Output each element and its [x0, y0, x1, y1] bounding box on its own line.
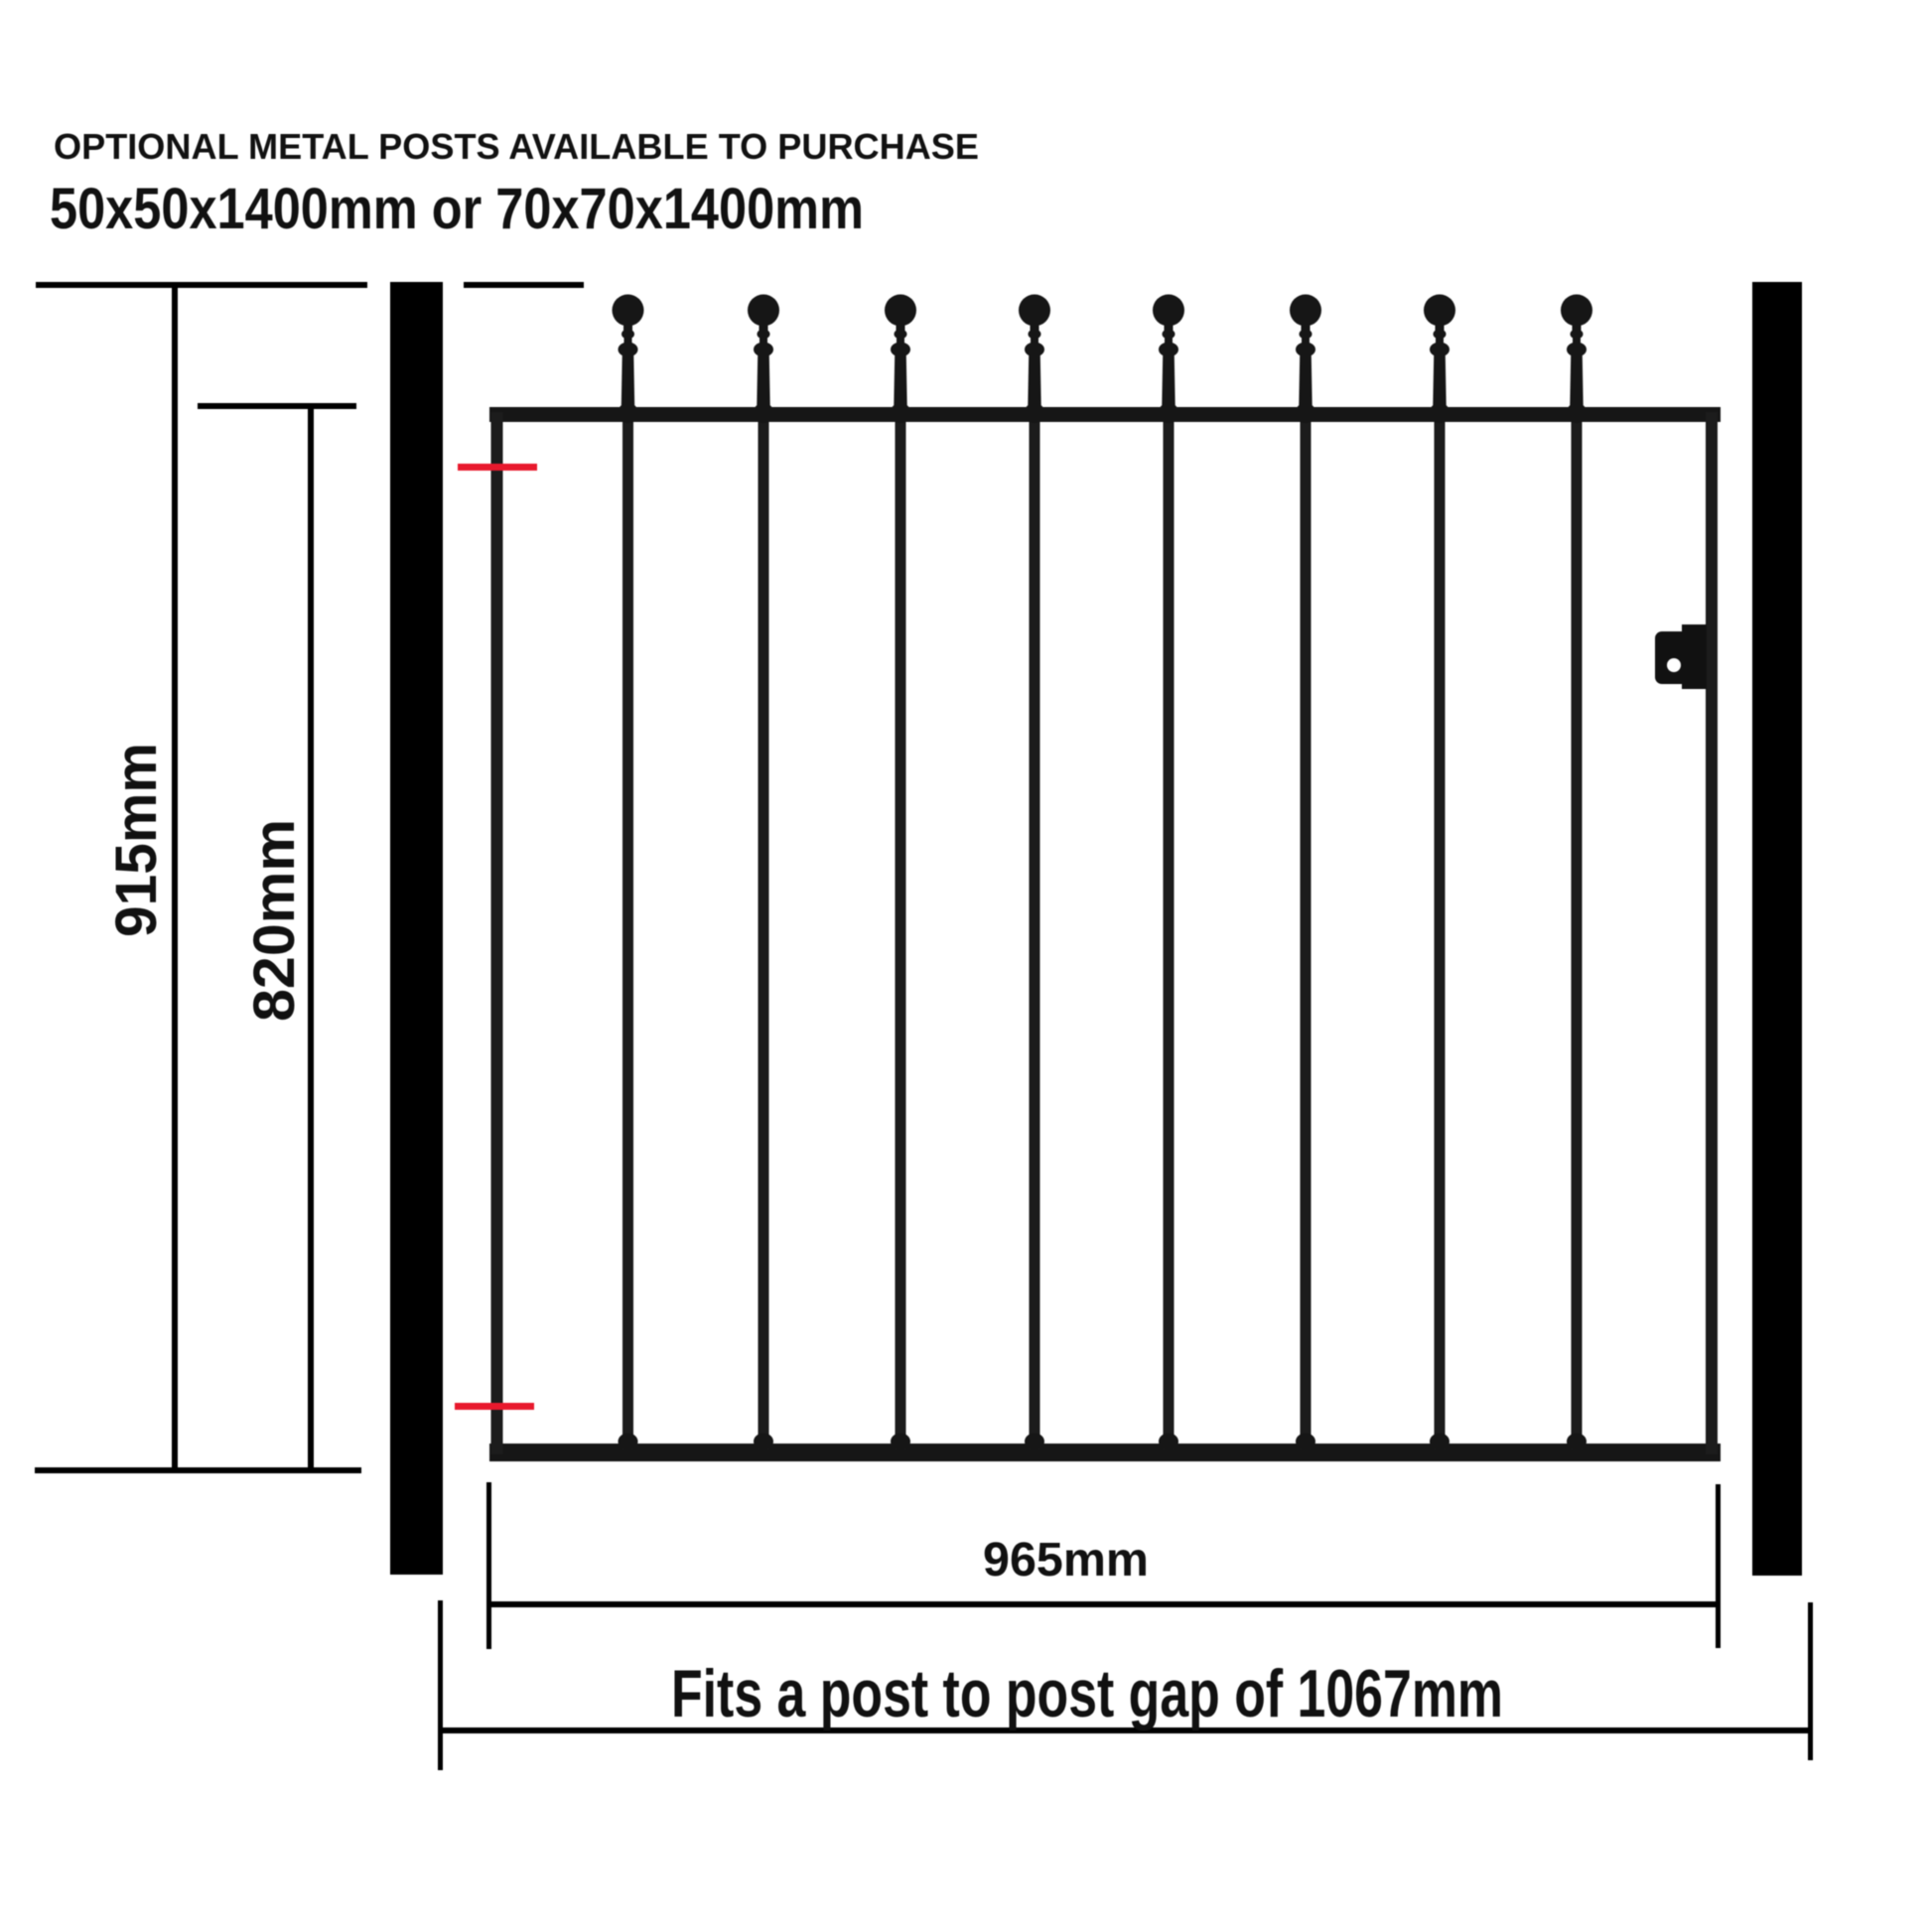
svg-text:Fits a post to post gap of 106: Fits a post to post gap of 1067mm — [671, 1656, 1503, 1731]
svg-text:915mm: 915mm — [104, 743, 169, 937]
svg-text:820mm: 820mm — [242, 819, 307, 1022]
svg-text:965mm: 965mm — [983, 1534, 1149, 1587]
svg-text:50x50x1400mm or 70x70x1400mm: 50x50x1400mm or 70x70x1400mm — [50, 177, 864, 241]
svg-text:OPTIONAL METAL POSTS AVAILABLE: OPTIONAL METAL POSTS AVAILABLE TO PURCHA… — [54, 126, 979, 167]
